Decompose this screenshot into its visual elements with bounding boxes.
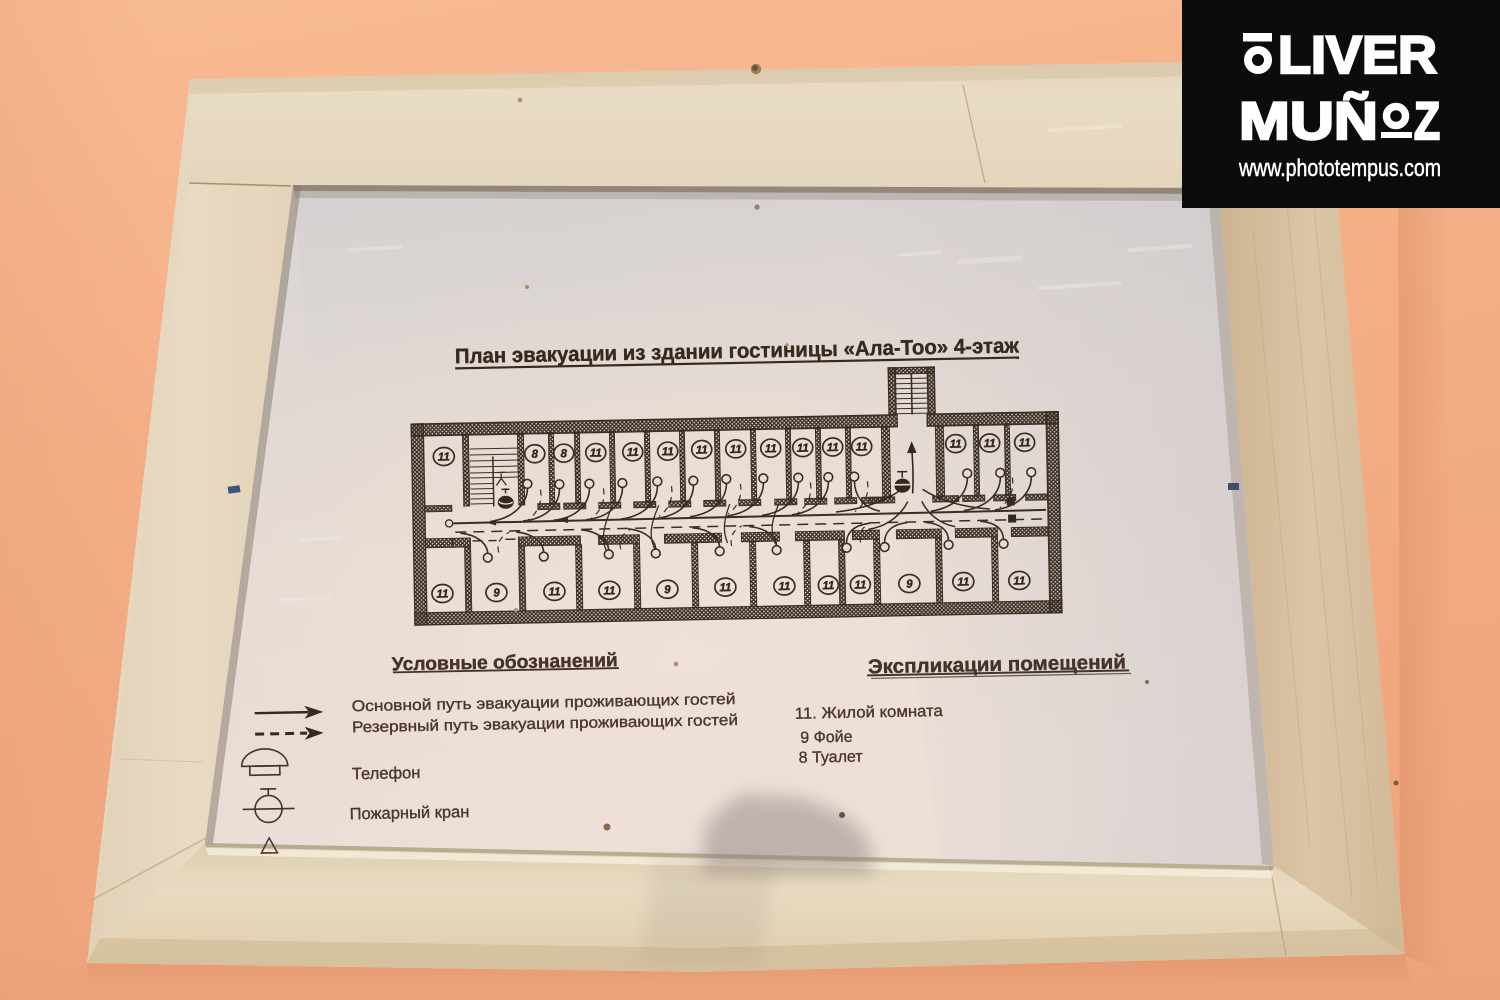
svg-text:11: 11	[662, 446, 674, 458]
svg-text:11: 11	[822, 580, 834, 592]
svg-text:11: 11	[438, 451, 450, 463]
svg-text:8 Туалет: 8 Туалет	[799, 748, 864, 766]
svg-text:11: 11	[1019, 437, 1031, 449]
svg-text:11: 11	[719, 582, 731, 594]
svg-text:11: 11	[856, 441, 868, 453]
svg-text:11: 11	[957, 576, 969, 588]
svg-text:Пожарный кран: Пожарный кран	[350, 803, 470, 823]
svg-text:11: 11	[797, 442, 809, 454]
svg-text:9: 9	[664, 584, 671, 596]
svg-text:11: 11	[950, 439, 962, 451]
svg-text:MUÑ: MUÑ	[1239, 91, 1378, 151]
svg-text:11: 11	[603, 585, 615, 597]
svg-text:11: 11	[984, 438, 996, 450]
svg-text:11: 11	[627, 447, 639, 459]
svg-text:Телефон: Телефон	[352, 764, 421, 783]
svg-text:11: 11	[436, 588, 448, 600]
svg-text:www.phototempus.com: www.phototempus.com	[1238, 155, 1441, 182]
svg-text:9: 9	[906, 578, 913, 590]
svg-text:9 Фойе: 9 Фойе	[800, 729, 853, 747]
svg-text:11: 11	[778, 581, 790, 593]
svg-text:9: 9	[493, 587, 500, 599]
svg-text:11: 11	[1013, 575, 1025, 587]
svg-text:11. Жилой комната: 11. Жилой комната	[795, 703, 943, 723]
svg-text:11: 11	[730, 444, 742, 456]
svg-text:Z: Z	[1414, 92, 1440, 151]
svg-text:8: 8	[560, 448, 567, 460]
svg-text:11: 11	[590, 447, 602, 459]
svg-text:11: 11	[854, 579, 866, 591]
svg-text:11: 11	[548, 586, 560, 598]
svg-text:11: 11	[765, 443, 777, 455]
svg-text:8: 8	[531, 449, 538, 461]
svg-text:LIVER: LIVER	[1278, 26, 1437, 85]
svg-text:11: 11	[827, 442, 839, 454]
svg-text:11: 11	[696, 444, 708, 456]
